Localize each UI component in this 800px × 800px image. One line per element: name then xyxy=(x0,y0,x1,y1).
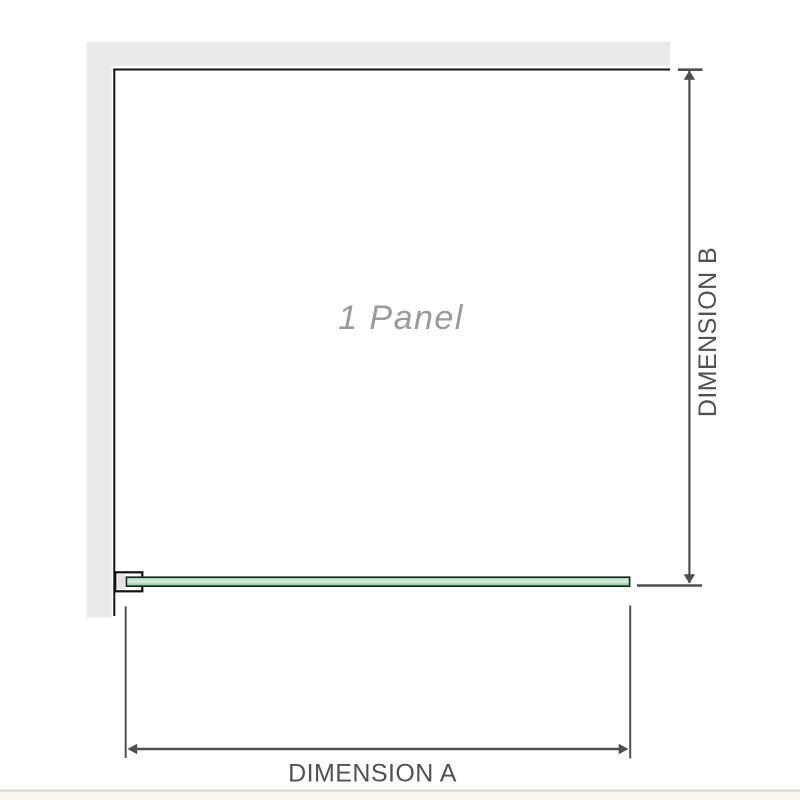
svg-text:DIMENSION B: DIMENSION B xyxy=(694,247,722,417)
svg-text:1 Panel: 1 Panel xyxy=(338,299,464,337)
svg-text:DIMENSION A: DIMENSION A xyxy=(288,760,457,788)
